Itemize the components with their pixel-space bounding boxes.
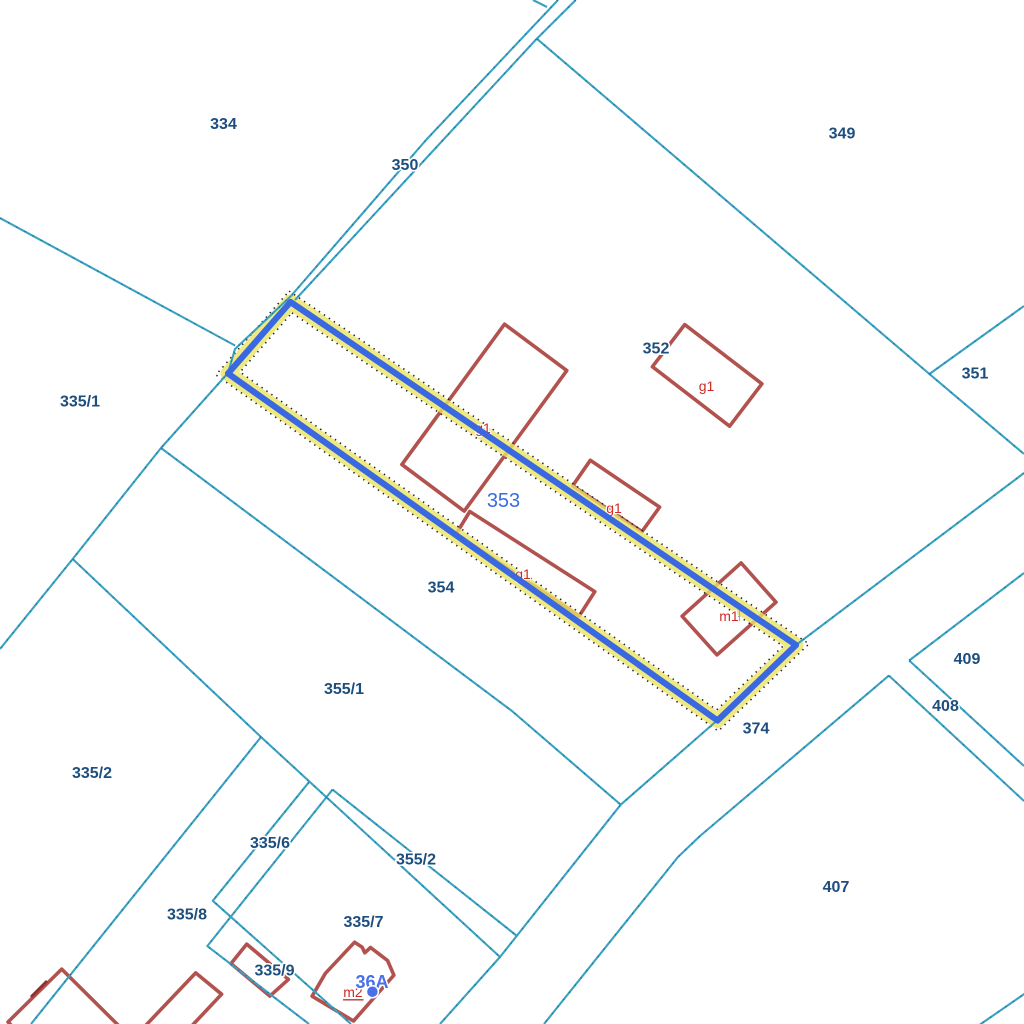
svg-text:355/1: 355/1	[324, 681, 364, 698]
svg-text:335/8: 335/8	[167, 907, 207, 924]
svg-text:m1: m1	[719, 608, 739, 624]
svg-text:335/6: 335/6	[250, 835, 290, 852]
svg-text:g1: g1	[699, 378, 715, 394]
svg-text:355/2: 355/2	[396, 852, 436, 869]
svg-text:350: 350	[392, 157, 419, 174]
svg-text:408: 408	[932, 698, 959, 715]
svg-text:354: 354	[428, 580, 455, 597]
svg-text:334: 334	[210, 116, 237, 133]
svg-text:353: 353	[487, 490, 520, 512]
svg-text:335/1: 335/1	[60, 394, 100, 411]
svg-text:335/7: 335/7	[343, 914, 383, 931]
svg-text:g1: g1	[606, 500, 622, 516]
svg-text:409: 409	[954, 651, 981, 668]
svg-text:349: 349	[829, 126, 856, 143]
svg-text:335/2: 335/2	[72, 765, 112, 782]
svg-text:351: 351	[962, 366, 989, 383]
svg-text:352: 352	[643, 341, 670, 358]
svg-text:407: 407	[823, 879, 850, 896]
svg-text:374: 374	[743, 721, 770, 738]
svg-text:335/9: 335/9	[254, 963, 294, 980]
